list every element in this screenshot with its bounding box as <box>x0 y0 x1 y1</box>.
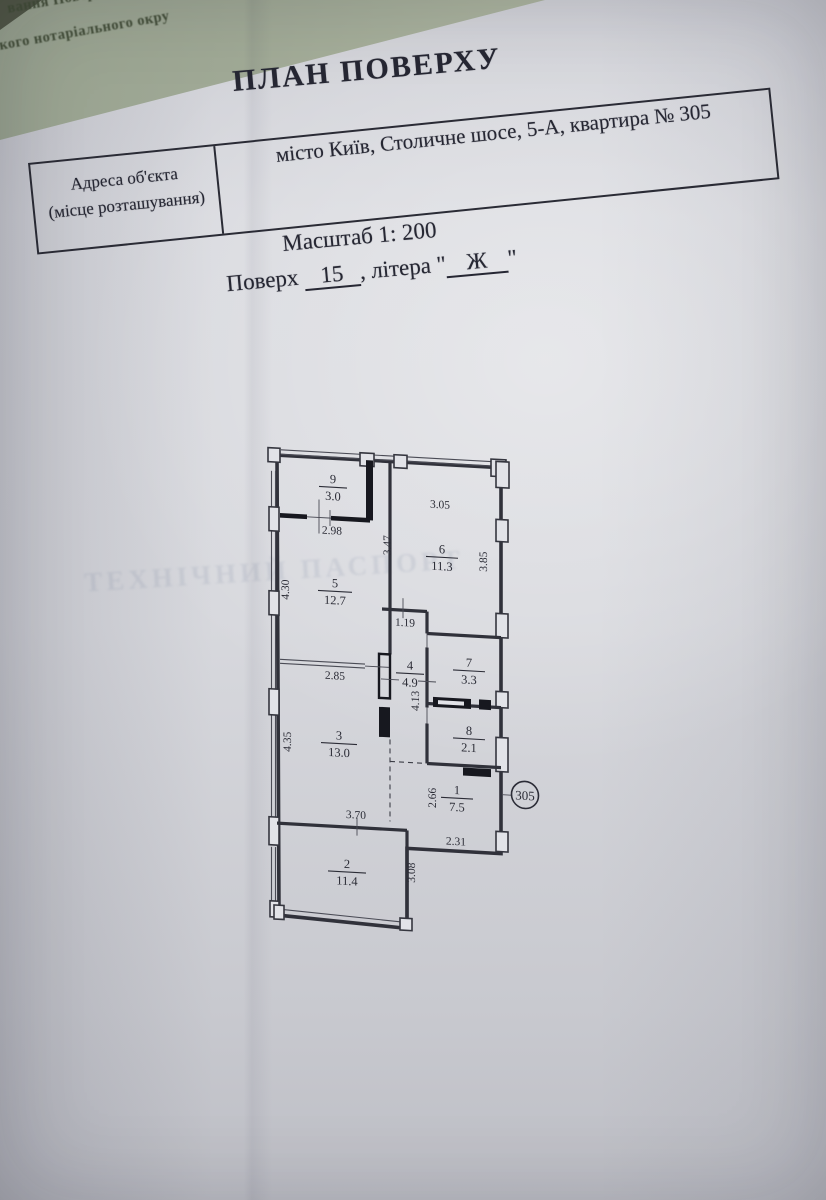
floor-plan-group: 9 3.0 6 11.3 5 12.7 4 4.9 7 <box>268 447 539 938</box>
room-label-6: 6 11.3 <box>426 541 458 574</box>
quote-close: " <box>506 245 518 271</box>
dimension-room6-left: 3.47 <box>382 535 394 556</box>
svg-text:1: 1 <box>454 783 460 797</box>
floor-label: Поверх <box>225 265 299 296</box>
address-value-cell: місто Київ, Столичне шосе, 5-А, квартира… <box>215 90 777 234</box>
dimension-room5-bottom: 2.85 <box>325 670 345 683</box>
dimension-room1-side: 2.66 <box>427 787 439 808</box>
room-label-3: 3 13.0 <box>321 728 357 761</box>
photographed-document: вання Повер кого нотаріального окру ПЛАН… <box>0 0 826 1200</box>
letter-label: , літера <box>359 253 432 284</box>
apartment-number-badge: 305 <box>502 780 539 809</box>
interior-walls <box>274 455 501 936</box>
svg-text:11.3: 11.3 <box>431 559 452 574</box>
dimension-room6-top: 3.05 <box>430 499 450 512</box>
floor-letter-line: Поверх 15, літера "Ж" <box>225 245 518 299</box>
svg-text:7.5: 7.5 <box>449 800 465 815</box>
dimension-hallway: 1.19 <box>395 617 415 630</box>
dimension-room3-left: 4.35 <box>282 731 294 752</box>
dimension-room2-top: 3.70 <box>346 809 366 822</box>
svg-text:13.0: 13.0 <box>328 745 350 760</box>
svg-text:7: 7 <box>466 656 472 670</box>
dimension-balcony-width: 2.98 <box>322 525 342 538</box>
svg-text:3: 3 <box>336 728 342 742</box>
svg-text:4.9: 4.9 <box>402 675 418 690</box>
svg-text:6: 6 <box>439 542 445 556</box>
dimension-room1-bottom: 2.31 <box>446 836 466 849</box>
room-label-5: 5 12.7 <box>318 575 352 608</box>
room-label-1: 1 7.5 <box>441 782 473 815</box>
room-label-8: 8 2.1 <box>453 723 485 756</box>
dimension-room8-side: 4.13 <box>410 690 422 711</box>
svg-text:5: 5 <box>332 576 338 590</box>
address-label-cell: Адреса об'єкта (місце розташування) <box>30 146 224 252</box>
room-label-9: 9 3.0 <box>319 471 347 504</box>
svg-text:12.7: 12.7 <box>324 593 346 608</box>
svg-text:3.0: 3.0 <box>325 489 341 504</box>
letter-value: Ж <box>445 246 509 279</box>
svg-text:9: 9 <box>330 472 336 486</box>
floor-value: 15 <box>303 259 361 291</box>
svg-text:8: 8 <box>466 724 472 738</box>
svg-text:2.1: 2.1 <box>461 740 477 755</box>
svg-text:3.3: 3.3 <box>461 672 477 687</box>
svg-text:11.4: 11.4 <box>336 873 358 888</box>
room-label-4: 4 4.9 <box>396 658 424 691</box>
dimension-room5-left: 4.30 <box>280 579 292 600</box>
room-label-2: 2 11.4 <box>328 856 366 889</box>
floor-plan-svg: 9 3.0 6 11.3 5 12.7 4 4.9 7 <box>257 442 551 957</box>
svg-text:2: 2 <box>344 857 350 871</box>
svg-text:4: 4 <box>407 658 414 672</box>
dimension-room2-right: 3.08 <box>406 862 418 883</box>
svg-text:305: 305 <box>515 787 534 803</box>
dimension-room6-right: 3.85 <box>478 551 490 572</box>
room-label-7: 7 3.3 <box>453 655 485 688</box>
